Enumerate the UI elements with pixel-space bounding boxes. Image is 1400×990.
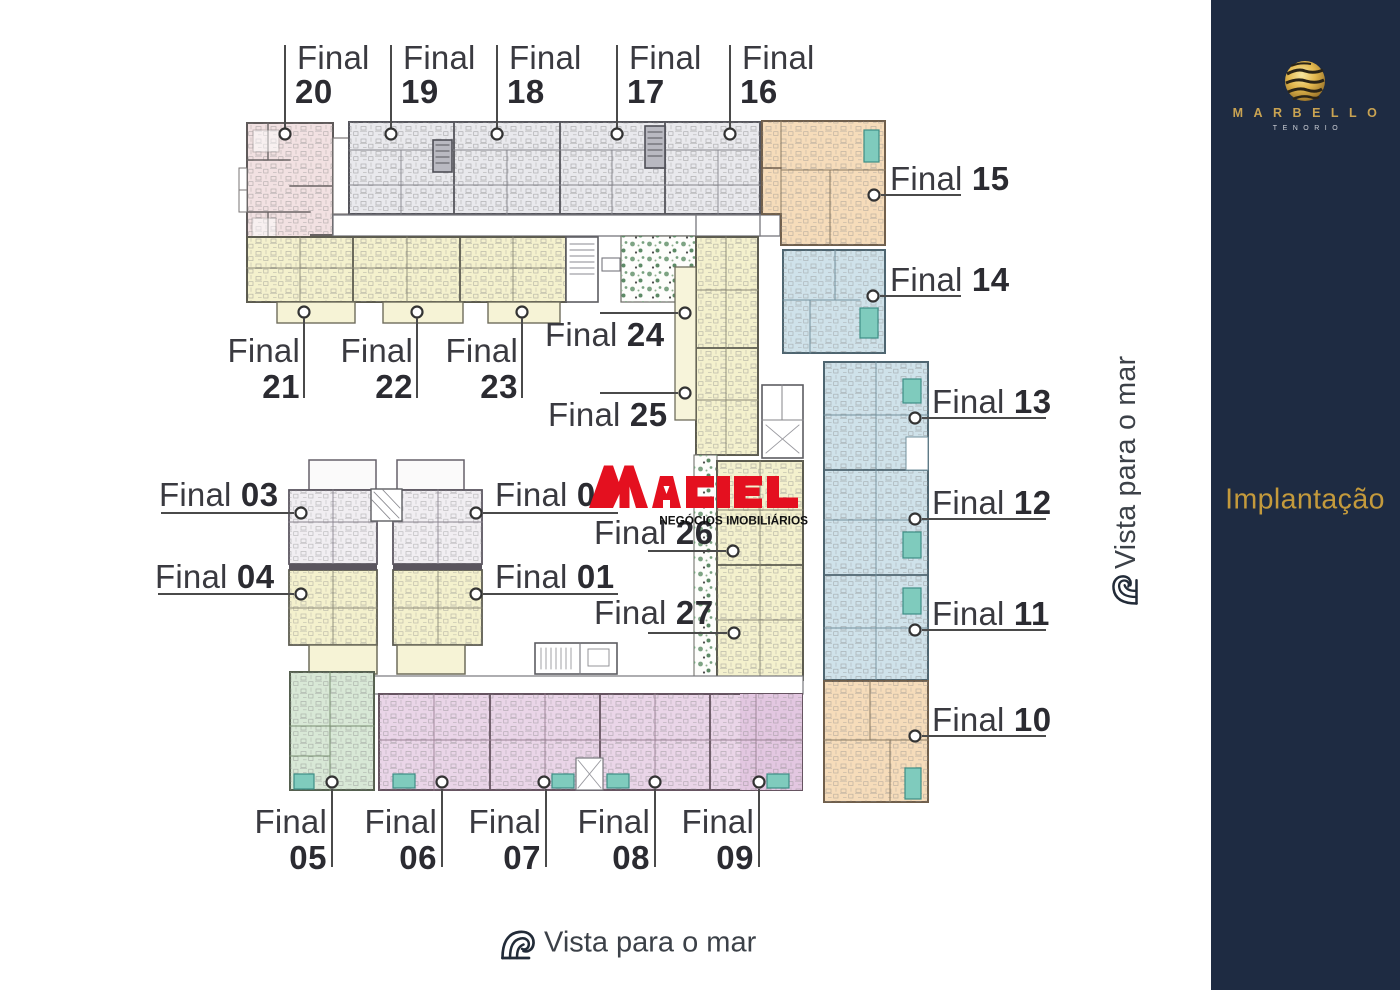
- svg-text:MARBELLO: MARBELLO: [1233, 106, 1388, 120]
- svg-text:Final: Final: [577, 803, 650, 840]
- svg-text:Final 24: Final 24: [545, 316, 665, 353]
- svg-text:Final: Final: [468, 803, 541, 840]
- svg-text:Final: Final: [629, 39, 702, 76]
- svg-text:Final 01: Final 01: [495, 558, 615, 595]
- svg-text:08: 08: [612, 839, 650, 876]
- svg-text:Final 11: Final 11: [932, 595, 1050, 632]
- svg-text:Final: Final: [297, 39, 370, 76]
- svg-text:Final 03: Final 03: [159, 476, 279, 513]
- svg-text:TENORIO: TENORIO: [1273, 125, 1343, 132]
- svg-text:Final: Final: [340, 332, 413, 369]
- svg-text:Final 04: Final 04: [155, 558, 275, 595]
- svg-text:NEGÓCIOS IMOBILIÁRIOS: NEGÓCIOS IMOBILIÁRIOS: [659, 514, 808, 528]
- svg-text:07: 07: [503, 839, 541, 876]
- svg-text:05: 05: [289, 839, 327, 876]
- svg-text:Final: Final: [445, 332, 518, 369]
- svg-text:Final 12: Final 12: [932, 484, 1052, 521]
- svg-text:Final 10: Final 10: [932, 701, 1052, 738]
- svg-text:Final 14: Final 14: [890, 261, 1010, 298]
- svg-text:21: 21: [262, 368, 300, 405]
- svg-text:Final 27: Final 27: [594, 594, 714, 631]
- svg-text:Final: Final: [403, 39, 476, 76]
- svg-text:Final: Final: [364, 803, 437, 840]
- svg-text:Final: Final: [254, 803, 327, 840]
- svg-text:22: 22: [375, 368, 413, 405]
- svg-text:17: 17: [627, 73, 665, 110]
- svg-text:20: 20: [295, 73, 333, 110]
- svg-text:18: 18: [507, 73, 545, 110]
- svg-text:Final 15: Final 15: [890, 160, 1010, 197]
- svg-text:Final: Final: [681, 803, 754, 840]
- svg-text:Final: Final: [742, 39, 815, 76]
- svg-text:Final 25: Final 25: [548, 396, 668, 433]
- svg-text:Implantação: Implantação: [1225, 484, 1385, 516]
- svg-text:06: 06: [399, 839, 437, 876]
- svg-text:Final 13: Final 13: [932, 383, 1052, 420]
- svg-text:09: 09: [716, 839, 754, 876]
- svg-text:Vista para o mar: Vista para o mar: [1110, 355, 1142, 569]
- svg-text:19: 19: [401, 73, 439, 110]
- svg-text:Final: Final: [509, 39, 582, 76]
- svg-text:Final: Final: [227, 332, 300, 369]
- svg-text:Vista para o mar: Vista para o mar: [544, 927, 757, 959]
- svg-text:23: 23: [480, 368, 518, 405]
- svg-text:16: 16: [740, 73, 778, 110]
